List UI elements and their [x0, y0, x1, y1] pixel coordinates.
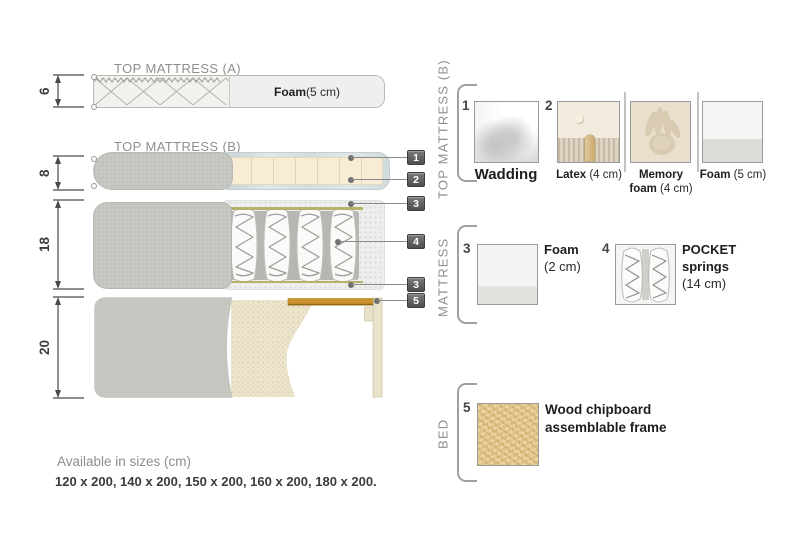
foam-2cm-label: Foam (2 cm) [544, 242, 604, 276]
foam-a-label-rest: (5 cm) [306, 85, 340, 99]
bed-base-diagram [92, 296, 384, 399]
section-bracket [457, 225, 477, 324]
marker-line [377, 300, 407, 302]
legend-num-3: 3 [463, 241, 471, 256]
legend-section-mattress: MATTRESS [433, 230, 453, 324]
marker-4: 4 [407, 234, 425, 249]
foam-5cm-label: Foam (5 cm) [690, 168, 776, 182]
legend-num-5: 5 [463, 400, 471, 415]
foam-2cm-image [477, 244, 538, 305]
stitch-circle-icon [91, 183, 97, 189]
foam-a-label-bold: Foam [274, 85, 306, 99]
marker-3-bottom: 3 [407, 277, 425, 292]
stitch-circle-icon [91, 74, 97, 80]
stitch-circle-icon [91, 156, 97, 162]
top-mattress-a-title: TOP MATTRESS (A) [114, 61, 241, 76]
sizes-text: 120 x 200, 140 x 200, 150 x 200, 160 x 2… [55, 474, 377, 489]
legend-num-1: 1 [462, 98, 470, 113]
top-mattress-b-diagram [93, 152, 390, 190]
foam-blocks-layer [229, 157, 383, 185]
fabric-cover [93, 202, 232, 289]
dimension-label-8: 8 [36, 155, 53, 191]
marker-line [351, 179, 407, 181]
legend-divider [697, 92, 699, 172]
dimension-label-20: 20 [36, 296, 53, 399]
marker-5: 5 [407, 293, 425, 308]
legend-section-top-mattress-b: TOP MATTRESS (B) [433, 66, 453, 192]
foam-5cm-image [702, 101, 763, 163]
dimension-arrow-18 [53, 199, 85, 290]
pocket-springs-image [615, 244, 676, 305]
legend-section-bed: BED [433, 405, 453, 463]
legend-num-2: 2 [545, 98, 553, 113]
marker-line [351, 284, 407, 286]
quilted-cover-pattern [94, 76, 229, 107]
foam-bottom-line [226, 281, 363, 284]
marker-3-top: 3 [407, 196, 425, 211]
latex-image [557, 101, 620, 163]
dimension-label-6: 6 [36, 74, 53, 108]
dimension-arrow-8 [53, 155, 85, 191]
wadding-image [474, 101, 539, 163]
pocket-springs-label: POCKET springs (14 cm) [682, 242, 762, 293]
top-mattress-a-diagram: Foam (5 cm) [93, 75, 385, 108]
dimension-label-18: 18 [36, 199, 53, 290]
mattress-infographic: 6 8 18 20 TOP MATTRESS (A) Foa [0, 0, 800, 533]
section-bracket [457, 383, 477, 482]
latex-dot-icon [574, 115, 583, 123]
pocket-springs-row [228, 210, 361, 281]
pocket-springs-icon [616, 245, 675, 304]
chipboard-image [477, 403, 539, 466]
legend-num-4: 4 [602, 241, 610, 256]
hand-imprint-icon [631, 102, 690, 162]
marker-1: 1 [407, 150, 425, 165]
marker-line [351, 157, 407, 159]
marker-line [338, 241, 407, 243]
dimension-arrow-20 [53, 296, 85, 399]
marker-2: 2 [407, 172, 425, 187]
dimension-arrow-6 [53, 74, 85, 108]
memory-foam-image [630, 101, 691, 163]
foam-layer-label-area: Foam (5 cm) [229, 76, 384, 107]
latex-finger-icon [585, 135, 595, 161]
legend-divider [624, 92, 626, 172]
chipboard-label: Wood chipboard assemblable frame [545, 401, 685, 436]
availability-text: Available in sizes (cm) [57, 454, 191, 469]
stitch-circle-icon [91, 104, 97, 110]
fabric-cover [93, 152, 233, 190]
marker-line [351, 203, 407, 205]
mattress-diagram [93, 200, 385, 290]
